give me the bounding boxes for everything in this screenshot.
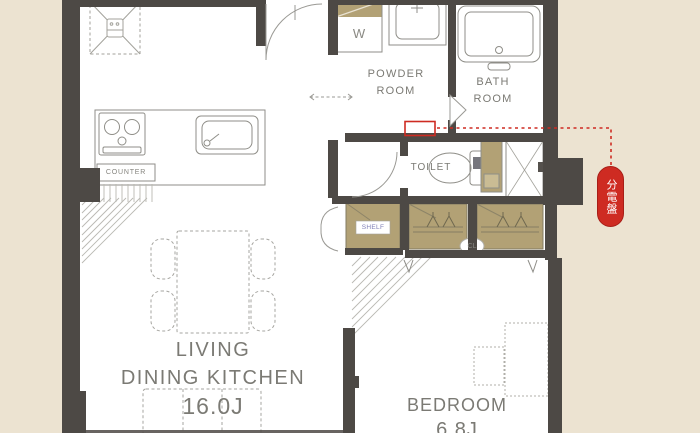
shelf-label: SHELF xyxy=(362,224,384,231)
room-label-bedroom: BEDROOM 6.8J xyxy=(407,393,507,433)
counter-label: COUNTER xyxy=(106,169,146,176)
washer-label: W xyxy=(353,26,365,41)
bedroom-name: BEDROOM xyxy=(407,393,507,418)
room-label-bath: BATH ROOM xyxy=(473,74,512,108)
powder-line1: POWDER xyxy=(368,66,425,83)
storage-closet xyxy=(506,141,543,199)
room-label-powder: POWDER ROOM xyxy=(368,66,425,100)
ldk-size: 16.0J xyxy=(121,392,305,420)
hanger-closet xyxy=(409,204,467,249)
room-label-ldk: LIVING DINING KITCHEN 16.0J xyxy=(121,336,305,420)
room-label-toilet: TOILET xyxy=(411,162,452,173)
floor-plan-drawing xyxy=(0,0,700,433)
floor-plan: LIVING DINING KITCHEN 16.0J BEDROOM 6.8J… xyxy=(0,0,700,433)
hanger-closet xyxy=(477,204,543,249)
bedroom-size: 6.8J xyxy=(407,418,507,433)
ldk-line1: LIVING xyxy=(121,336,305,364)
powder-line2: ROOM xyxy=(368,83,425,100)
ldk-line2: DINING KITCHEN xyxy=(121,364,305,392)
distribution-board-text: 分電盤 xyxy=(605,179,616,215)
bath-line1: BATH xyxy=(473,74,512,91)
closet-label: CL xyxy=(468,243,477,250)
pipe-space xyxy=(481,140,502,192)
distribution-board-tag: 分電盤 xyxy=(597,166,624,227)
bath-line2: ROOM xyxy=(473,91,512,108)
